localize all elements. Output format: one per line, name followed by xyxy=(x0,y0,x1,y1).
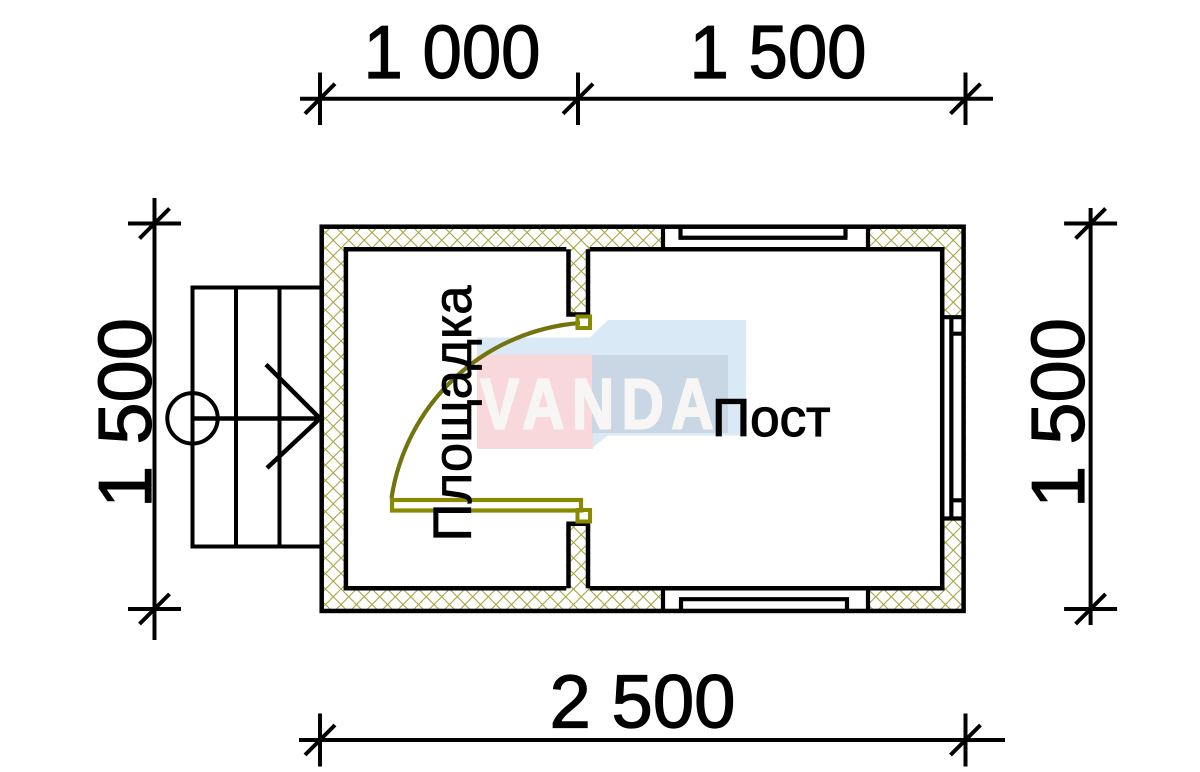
svg-text:1 000: 1 000 xyxy=(364,10,541,94)
svg-text:1 500: 1 500 xyxy=(83,318,167,508)
svg-text:Пост: Пост xyxy=(712,389,830,448)
svg-text:1 500: 1 500 xyxy=(1016,318,1100,508)
svg-text:1 500: 1 500 xyxy=(690,10,867,94)
svg-text:VANDA: VANDA xyxy=(480,364,721,444)
svg-text:2 500: 2 500 xyxy=(550,660,736,744)
svg-text:Площадка: Площадка xyxy=(423,285,483,542)
